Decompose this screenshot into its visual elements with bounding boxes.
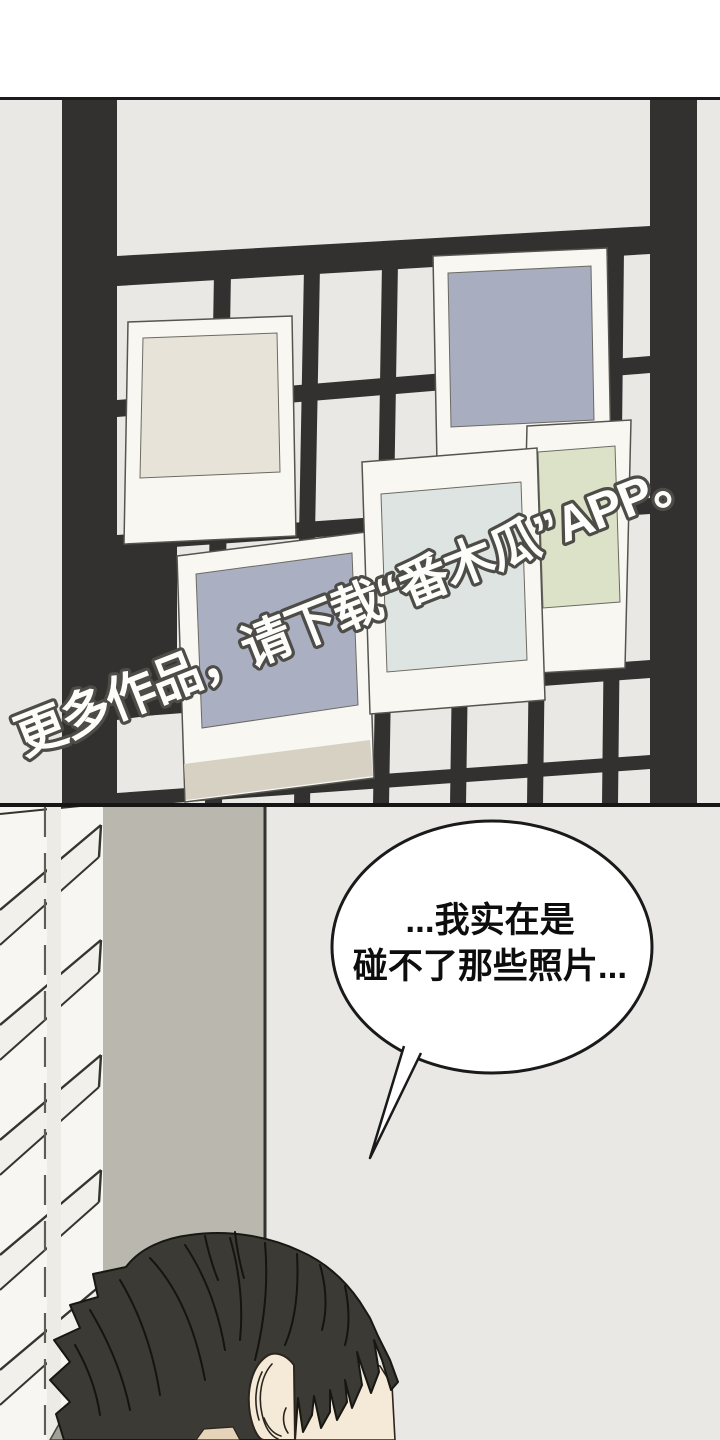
panel-divider	[0, 803, 720, 808]
top-border-line	[0, 97, 720, 101]
comic-page: 更多作品，请下载“番木瓜”APP。	[0, 0, 720, 1440]
polaroid-cream	[124, 316, 296, 544]
panel-photo-wall: 更多作品，请下载“番木瓜”APP。	[0, 100, 720, 807]
top-margin	[0, 0, 720, 100]
photo-image	[140, 333, 280, 478]
speech-text-line-1: ...我实在是	[405, 901, 574, 940]
photo-image	[448, 266, 594, 427]
speech-text-line-2: 碰不了那些照片...	[353, 947, 627, 986]
panel-room: ...我实在是 碰不了那些照片...	[0, 805, 720, 1440]
comic-artwork: 更多作品，请下载“番木瓜”APP。	[0, 0, 720, 1440]
